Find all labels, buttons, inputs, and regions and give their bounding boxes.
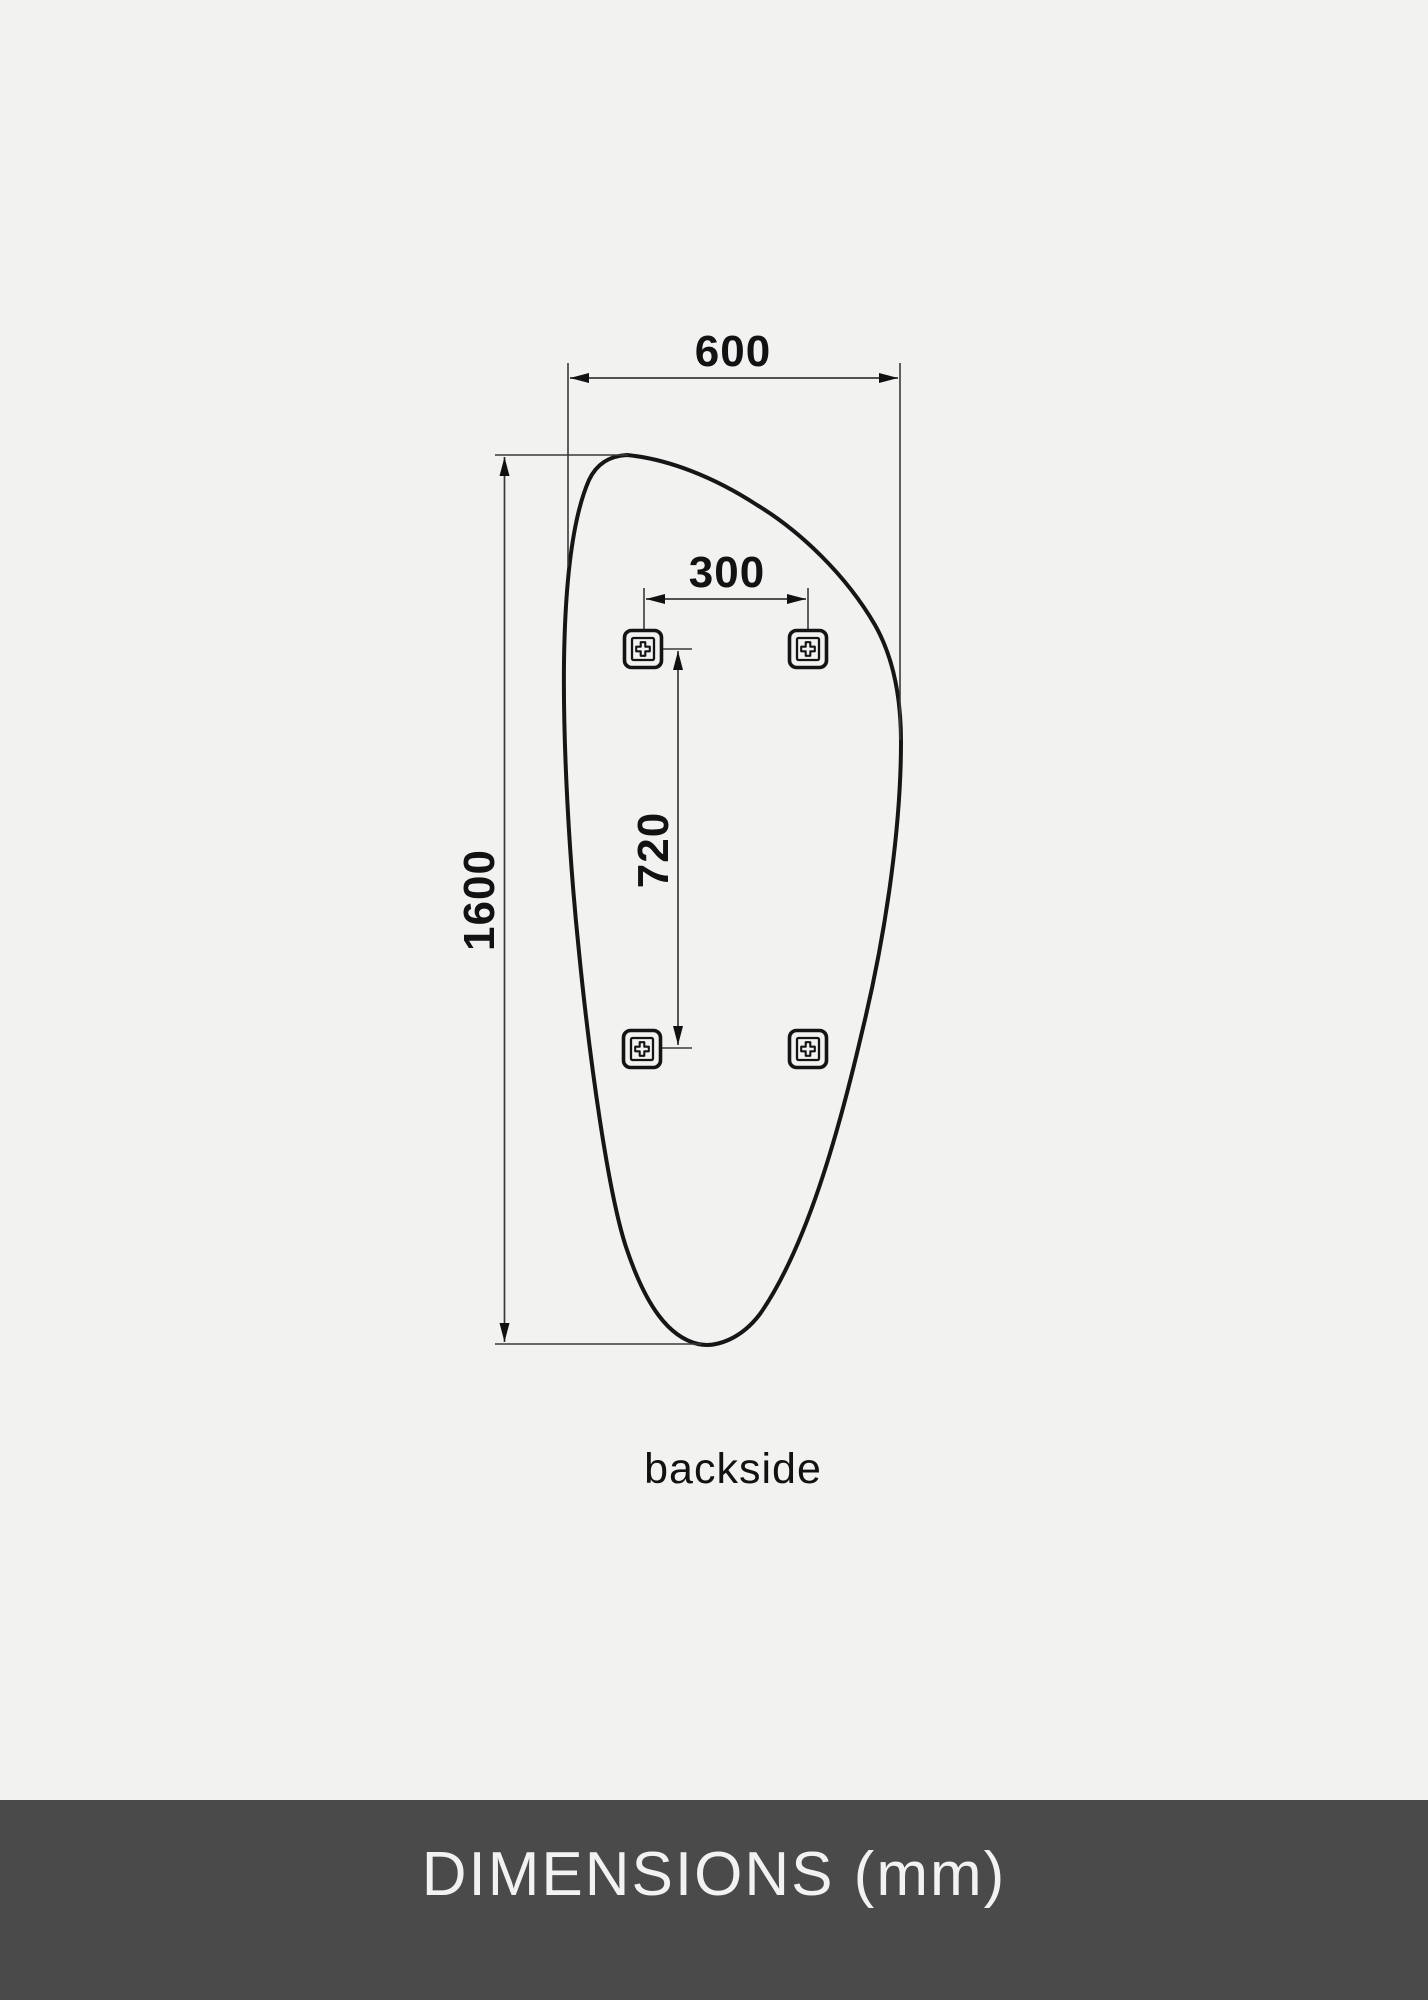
phillips-screw-icon <box>636 642 650 656</box>
dimension-hole-spacing-vertical: 720 <box>629 649 692 1048</box>
bracket-frame <box>790 1031 827 1068</box>
arrow-down-icon <box>500 1323 510 1342</box>
dim-label-hole-spacing-horizontal: 300 <box>689 548 765 597</box>
arrow-down-icon <box>673 1026 683 1045</box>
bracket-frame <box>624 1031 661 1068</box>
dim-label-hole-spacing-vertical: 720 <box>629 812 678 888</box>
dimension-hole-spacing-horizontal: 300 <box>644 548 808 630</box>
mounting-bracket-top-left <box>625 631 662 668</box>
arrow-right-icon <box>879 373 898 383</box>
phillips-screw-icon <box>635 1042 649 1056</box>
bracket-frame <box>790 631 827 668</box>
mirror-dimension-diagram: 600 1600 300 720 <box>0 0 1428 2000</box>
dimension-sheet: 600 1600 300 720 <box>0 0 1428 2000</box>
mounting-bracket-bottom-left <box>624 1031 661 1068</box>
phillips-screw-icon <box>801 1042 815 1056</box>
arrow-right-icon <box>787 594 806 604</box>
mounting-bracket-bottom-right <box>790 1031 827 1068</box>
arrow-left-icon <box>646 594 665 604</box>
dim-label-height: 1600 <box>455 849 504 951</box>
dim-label-width: 600 <box>695 327 771 376</box>
dimension-height: 1600 <box>455 455 701 1344</box>
arrow-up-icon <box>500 457 510 476</box>
footer-bar: DIMENSIONS (mm) <box>0 1800 1428 2000</box>
arrow-left-icon <box>570 373 589 383</box>
mounting-bracket-top-right <box>790 631 827 668</box>
dimension-width: 600 <box>568 327 900 740</box>
phillips-screw-icon <box>801 642 815 656</box>
arrow-up-icon <box>673 651 683 670</box>
footer-title: DIMENSIONS (mm) <box>422 1839 1007 1910</box>
view-label: backside <box>644 1445 822 1493</box>
bracket-frame <box>625 631 662 668</box>
